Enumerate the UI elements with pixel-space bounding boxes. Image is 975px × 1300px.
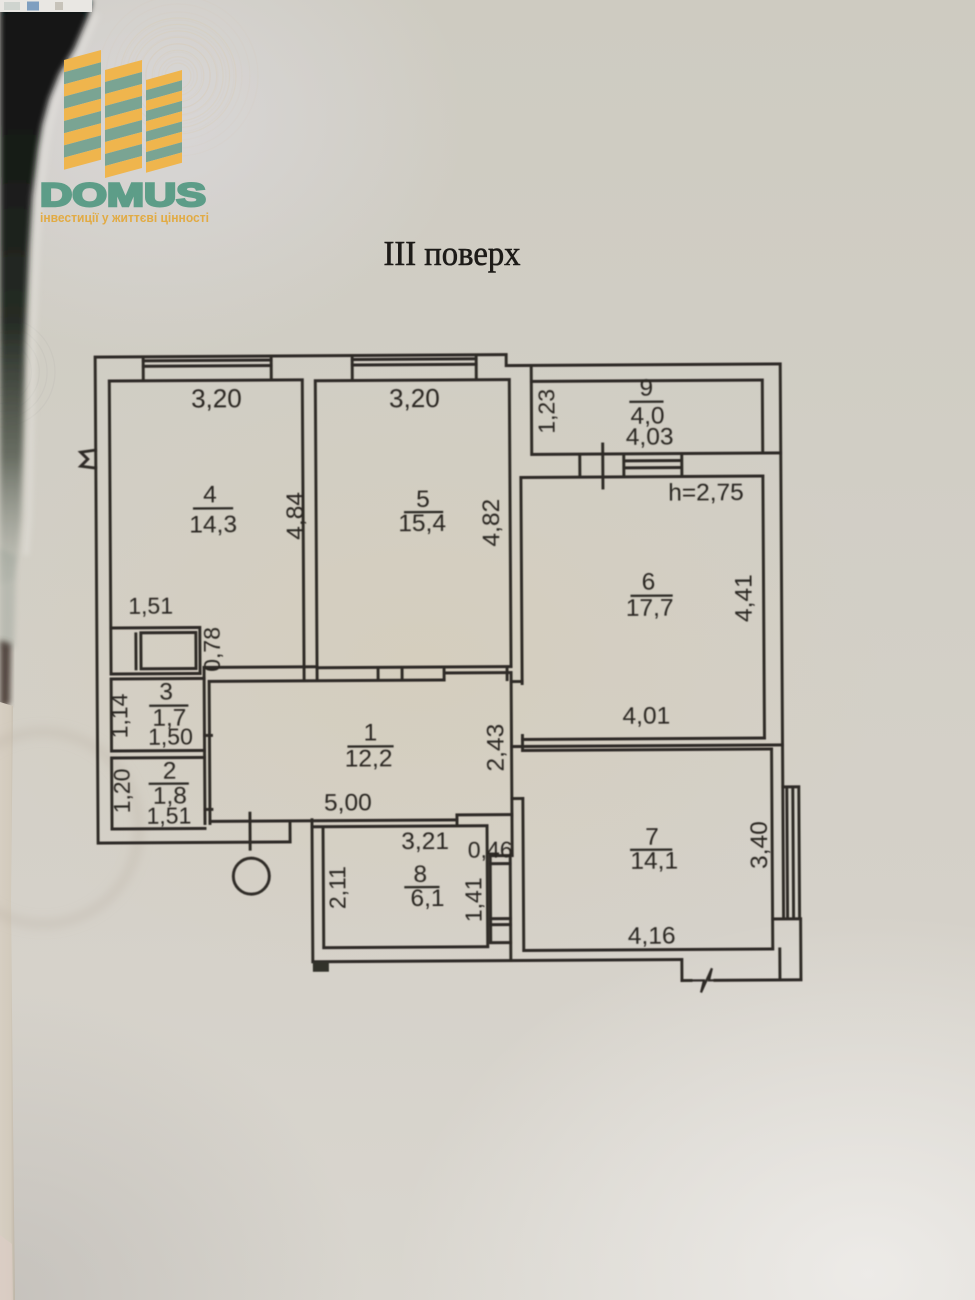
- svg-text:DOMUS: DOMUS: [40, 177, 206, 213]
- svg-text:1,51: 1,51: [146, 803, 191, 829]
- svg-text:3: 3: [159, 679, 173, 706]
- svg-text:5: 5: [416, 486, 430, 513]
- svg-text:5,00: 5,00: [324, 789, 372, 816]
- svg-text:9: 9: [639, 375, 653, 402]
- svg-text:6: 6: [642, 569, 656, 596]
- svg-text:1,20: 1,20: [109, 768, 135, 813]
- svg-text:15,4: 15,4: [398, 510, 446, 537]
- svg-text:h=2,75: h=2,75: [668, 479, 744, 506]
- svg-text:ІІІ поверх: ІІІ поверх: [384, 234, 521, 273]
- svg-text:4,41: 4,41: [730, 574, 757, 622]
- svg-text:4,84: 4,84: [282, 492, 309, 540]
- svg-text:14,3: 14,3: [189, 511, 237, 538]
- svg-text:1,51: 1,51: [128, 593, 173, 619]
- svg-text:4,82: 4,82: [478, 499, 505, 547]
- svg-text:12,2: 12,2: [345, 745, 393, 772]
- svg-text:3,20: 3,20: [389, 383, 440, 413]
- svg-text:1: 1: [364, 719, 378, 746]
- svg-text:4,0: 4,0: [630, 403, 664, 430]
- svg-text:14,1: 14,1: [630, 848, 678, 875]
- svg-text:17,7: 17,7: [626, 595, 674, 622]
- svg-text:2,11: 2,11: [324, 866, 350, 909]
- svg-text:1,14: 1,14: [106, 693, 132, 738]
- svg-text:8: 8: [413, 861, 427, 888]
- svg-text:4,16: 4,16: [628, 923, 676, 950]
- svg-text:7: 7: [645, 824, 659, 851]
- svg-text:інвестиції у життєві цінності: інвестиції у життєві цінності: [40, 210, 209, 225]
- svg-text:0,78: 0,78: [199, 627, 225, 672]
- svg-text:3,40: 3,40: [746, 821, 773, 869]
- svg-text:1,41: 1,41: [460, 877, 486, 922]
- svg-text:4,01: 4,01: [622, 703, 670, 730]
- svg-text:0,46: 0,46: [468, 837, 513, 863]
- svg-text:6,1: 6,1: [410, 885, 444, 912]
- svg-text:4,03: 4,03: [626, 424, 674, 451]
- svg-text:1,23: 1,23: [533, 389, 559, 434]
- svg-text:3,20: 3,20: [191, 383, 242, 413]
- svg-text:4: 4: [203, 481, 217, 508]
- svg-text:1,8: 1,8: [153, 783, 187, 810]
- svg-text:1,50: 1,50: [148, 724, 193, 750]
- svg-text:2: 2: [163, 758, 177, 785]
- svg-text:3,21: 3,21: [401, 828, 449, 855]
- svg-text:1,7: 1,7: [152, 705, 186, 732]
- svg-text:2,43: 2,43: [482, 724, 509, 772]
